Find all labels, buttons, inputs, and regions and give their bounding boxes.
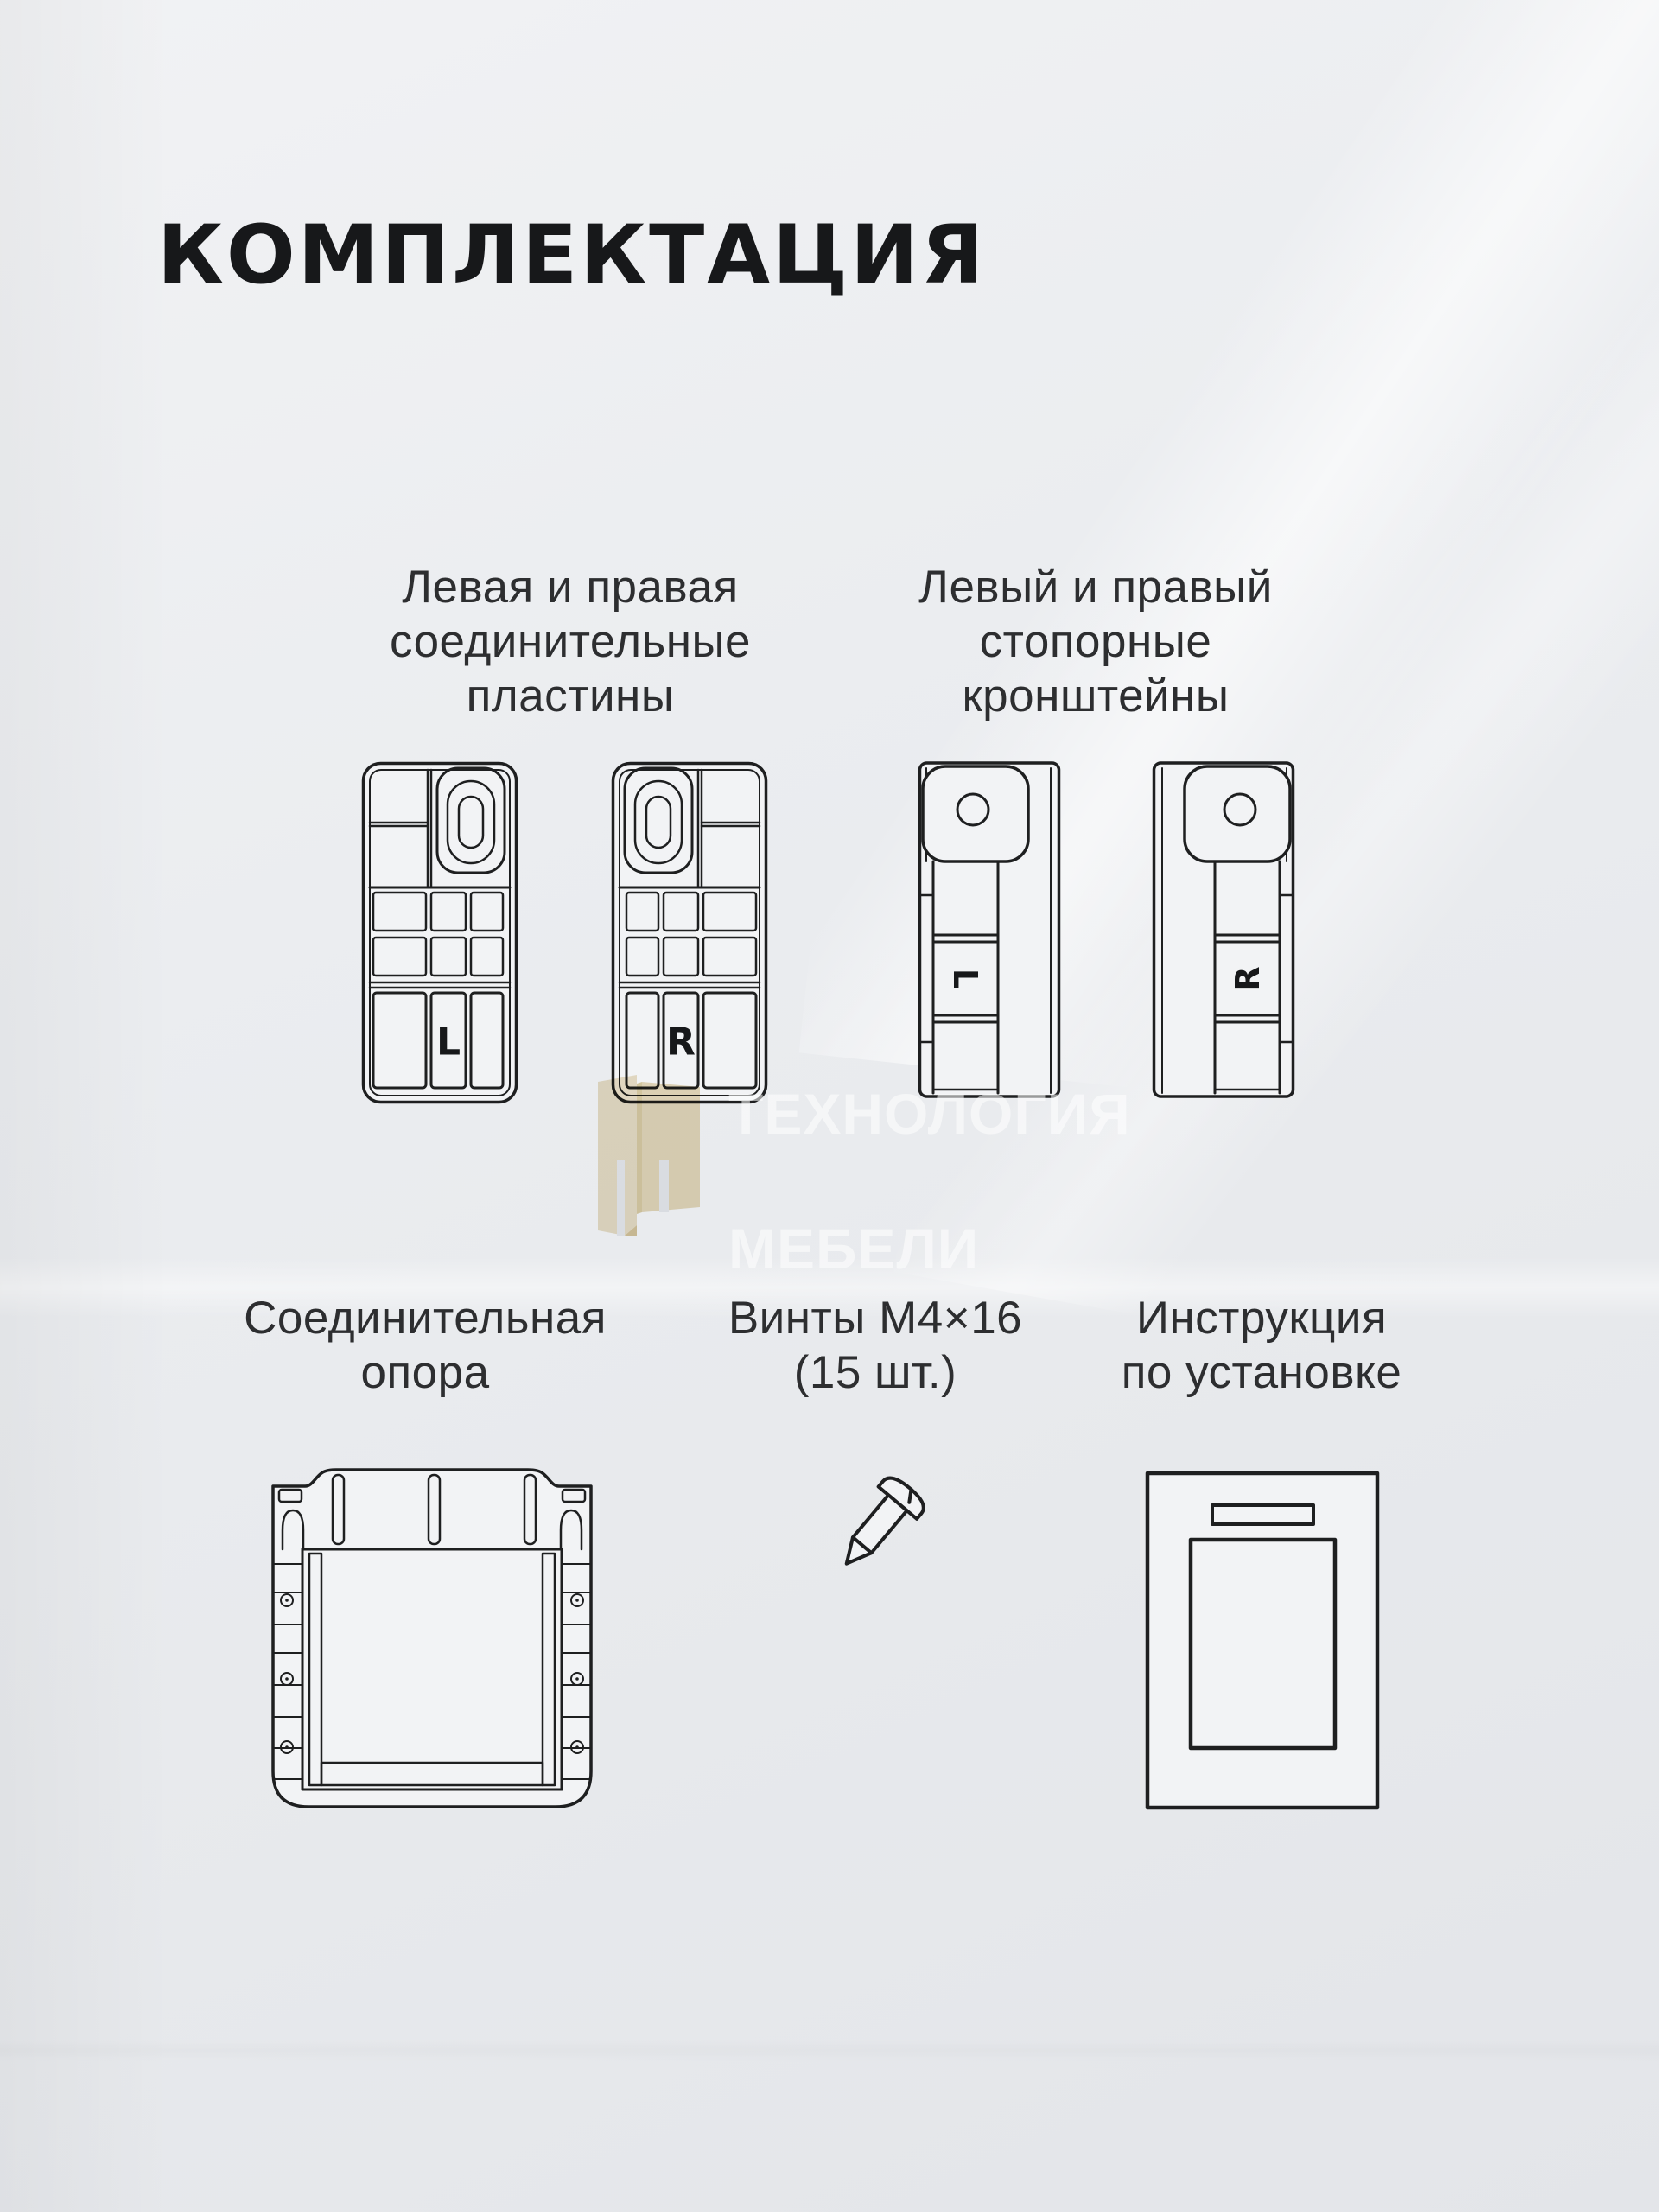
infographic-page: КОМПЛЕКТАЦИЯ Левая и правая соединительн… bbox=[0, 0, 1659, 2212]
letter-mark-left: L bbox=[946, 969, 984, 989]
letter-mark-right: R bbox=[666, 1020, 696, 1065]
screw-icon bbox=[810, 1462, 931, 1605]
backdrop-seam bbox=[0, 2039, 1659, 2062]
edge-vignette bbox=[0, 0, 173, 2212]
support-body bbox=[273, 1470, 591, 1807]
watermark-line1: ТЕХНОЛОГИЯ bbox=[728, 1082, 1131, 1146]
label-manual: Инструкция по установке bbox=[1037, 1291, 1486, 1400]
bracket-body bbox=[920, 763, 1059, 1096]
label-screws: Винты М4×16 (15 шт.) bbox=[651, 1291, 1100, 1400]
watermark-line2: МЕБЕЛИ bbox=[728, 1217, 979, 1281]
screw-drawing bbox=[828, 1472, 930, 1580]
connecting-plate-left-illustration: L bbox=[361, 761, 518, 1104]
stop-bracket-left-illustration: L bbox=[918, 760, 1061, 1100]
label-connecting-plates: Левая и правая соединительные пластины bbox=[346, 560, 795, 723]
letter-mark-right: R bbox=[1229, 966, 1267, 991]
connecting-support-illustration bbox=[270, 1467, 594, 1811]
label-connecting-support: Соединительная опора bbox=[200, 1291, 650, 1400]
watermark-text: ТЕХНОЛОГИЯ МЕБЕЛИ bbox=[728, 1080, 1131, 1282]
page-title: КОМПЛЕКТАЦИЯ bbox=[157, 214, 986, 297]
bracket-body-mirrored bbox=[1154, 763, 1294, 1096]
connecting-plate-right-illustration: R bbox=[611, 761, 768, 1104]
manual-illustration bbox=[1145, 1471, 1380, 1810]
technologia-mebeli-logo bbox=[598, 1073, 700, 1236]
stop-bracket-right-illustration: R bbox=[1152, 760, 1295, 1100]
letter-mark-left: L bbox=[436, 1020, 461, 1065]
label-stop-brackets: Левый и правый стопорные кронштейны bbox=[871, 560, 1320, 723]
